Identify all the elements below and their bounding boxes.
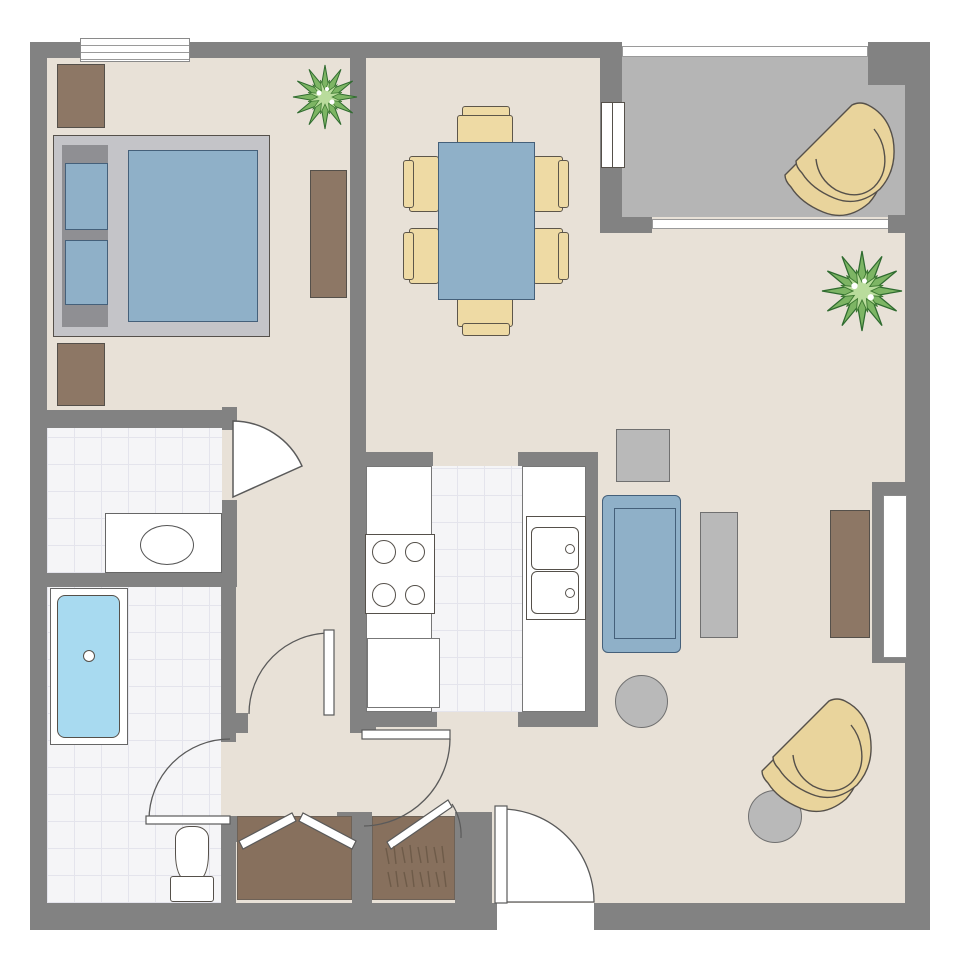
balcony-sliding-door-pane (612, 102, 625, 168)
closet-bifold-interior (237, 816, 352, 900)
dining-table (438, 142, 535, 300)
bathtub-drain (83, 650, 95, 662)
bed-pillow-bottom (65, 240, 108, 305)
bedroom-window (80, 38, 190, 62)
sofa-side-square-table (616, 429, 670, 482)
sink-drain-top (565, 544, 575, 554)
dining-chair-bottom-back (462, 323, 510, 336)
burner-top-left (372, 540, 396, 564)
dining-chair-right2-back (558, 232, 569, 280)
dining-chair-top-seat (457, 115, 513, 145)
kitchen-floor (430, 466, 523, 712)
apartment-floor-plan (0, 0, 967, 955)
wall-kitchen-right (586, 452, 598, 727)
living-window (883, 495, 907, 658)
dresser-upper (57, 64, 105, 128)
coffee-table (700, 512, 738, 638)
bathtub-inner (57, 595, 120, 738)
wall-bottom-right (594, 903, 930, 930)
burner-top-right (405, 542, 425, 562)
balcony-railing-bottom (652, 219, 890, 229)
wall-bath-divider (30, 573, 237, 587)
wall-bottom-left (30, 903, 497, 930)
dining-chair-right1-back (558, 160, 569, 208)
dining-chair-left1-back (403, 160, 414, 208)
burner-bottom-left (372, 583, 396, 607)
wall-hall-stub-left (221, 713, 248, 733)
sofa-seat-line (614, 508, 676, 639)
wall-bedroom-bottom (47, 410, 236, 428)
bed-pillow-top (65, 163, 108, 230)
balcony-floor (622, 56, 905, 217)
toilet-bowl (175, 826, 209, 880)
closet-clothes-interior (372, 816, 455, 900)
wall-kitchen-bottom-left (366, 712, 437, 727)
toilet-tank (170, 876, 214, 902)
tv-console (830, 510, 870, 638)
wall-kitchen-bottom-right (518, 712, 598, 727)
balcony-bottom-stub-right (888, 215, 930, 233)
wall-closet-divider (352, 812, 372, 903)
burner-bottom-right (405, 585, 425, 605)
round-side-table-chair (748, 790, 802, 843)
balcony-bottom-stub-left (600, 217, 652, 233)
bed-mattress (128, 150, 258, 322)
wall-vanity-right-upper (222, 407, 237, 430)
wall-bedroom-dining (350, 42, 366, 727)
vanity-sink (140, 525, 194, 565)
balcony-railing-top (622, 46, 868, 57)
dresser-lower (57, 343, 105, 406)
wall-kitchen-top-left (366, 452, 433, 466)
wall-closet-right (455, 812, 492, 903)
wall-left (30, 42, 47, 903)
wall-right (905, 42, 930, 903)
sink-drain-bottom (565, 588, 575, 598)
dining-chair-left2-back (403, 232, 414, 280)
wall-corner-top-right (868, 42, 930, 85)
console-table-bedroom (310, 170, 347, 298)
kitchen-lower-appliance (367, 638, 440, 708)
round-side-table-sofa (615, 675, 668, 728)
